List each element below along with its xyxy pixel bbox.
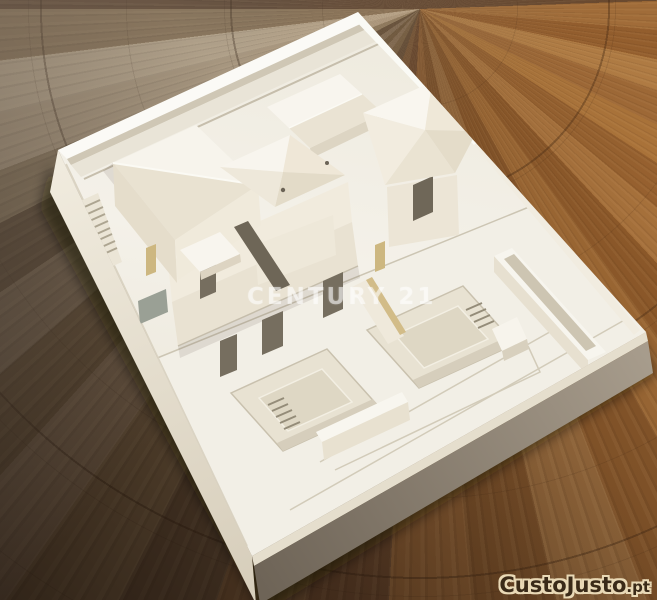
photo-frame: CENTURY 21 CustoJusto.pt [0, 0, 657, 600]
watermark-tld: .pt [626, 578, 650, 596]
tan-column [375, 241, 385, 272]
watermark-century21: CENTURY 21 [247, 284, 436, 310]
watermark-custojusto: CustoJusto.pt [499, 573, 650, 597]
tan-slot [146, 244, 156, 276]
watermark-brand: CustoJusto [499, 573, 626, 597]
